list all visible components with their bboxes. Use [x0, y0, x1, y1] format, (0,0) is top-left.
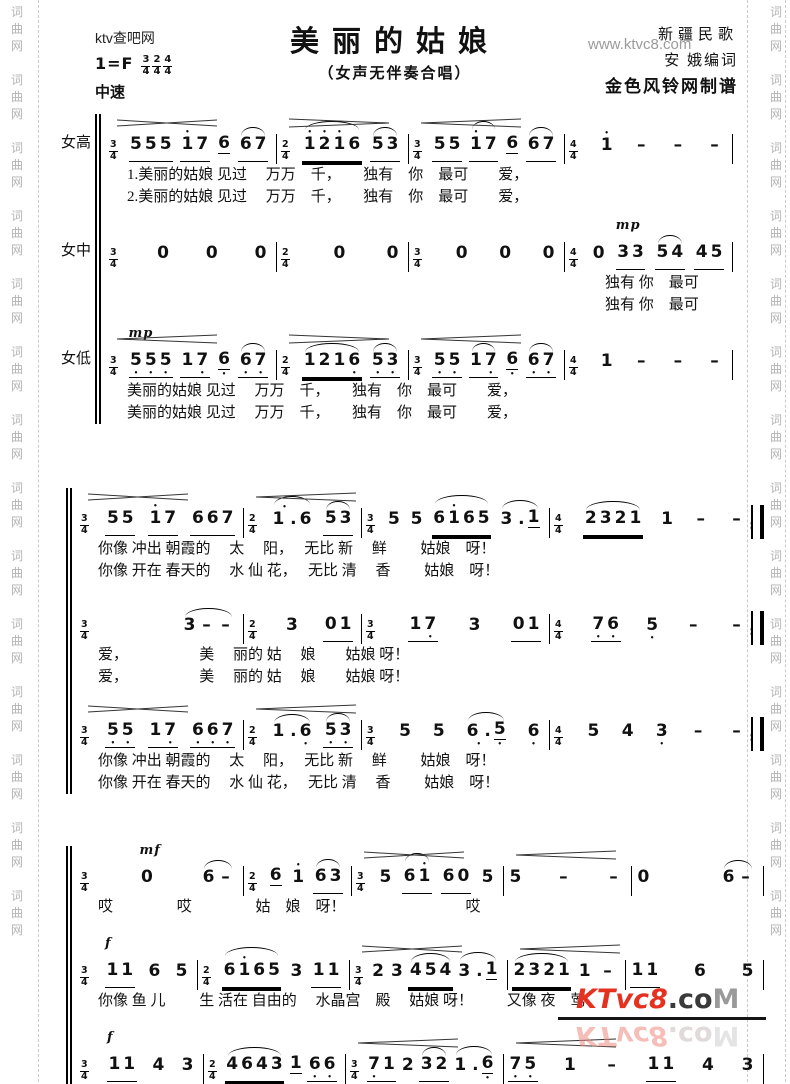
voice-label: 女低 [61, 347, 91, 368]
note: 6• [207, 510, 219, 534]
note-digit: 1 [470, 136, 482, 153]
note: •1• [238, 956, 250, 986]
time-signature: 34 [366, 726, 375, 748]
note: 5• [122, 722, 134, 746]
measure: 345•5•1•7•6•6•7• [409, 350, 565, 380]
beam-group: 6•7• [238, 136, 268, 162]
note: –• [199, 617, 215, 641]
note: 7• [222, 722, 234, 746]
note: 5• [510, 869, 522, 893]
note: 1• [313, 962, 325, 986]
beam-group: 3• [289, 963, 304, 988]
time-signature: 44 [163, 55, 172, 77]
note-group: –• [668, 137, 687, 162]
note-digit: – [706, 353, 722, 370]
note-group: 6•6•7• [190, 722, 235, 748]
lyric-line: 你像 开在 春天的 水 仙 花， 无比 清 香 姑娘 呀！ [76, 772, 770, 794]
beam-group: –• [727, 617, 746, 642]
note-digit: 5 [524, 1056, 536, 1073]
note-digit: 4 [622, 723, 634, 740]
octave-dot-below: • [532, 742, 536, 747]
beam-group: 1• [660, 511, 675, 536]
note: 6• [240, 136, 252, 160]
hairpin-icon [117, 118, 217, 128]
note-digit: – [606, 869, 622, 886]
note: 5• [399, 723, 411, 747]
note-group: 4• [620, 723, 635, 748]
time-signature: 24 [202, 966, 211, 988]
note: 3• [387, 136, 399, 160]
note-digit: 7 [510, 1056, 522, 1073]
note: 1• [149, 722, 161, 746]
note: 6• [348, 136, 360, 160]
beam-group: –• [632, 353, 651, 378]
note-group: 1• [599, 353, 614, 378]
note-digit: 3 [330, 868, 342, 885]
octave-dot-below: • [111, 741, 115, 746]
note: 5• [449, 136, 461, 160]
note: •1• [304, 130, 316, 160]
note: 5• [130, 136, 142, 160]
measure: 340•0•0• [409, 242, 565, 272]
note-group: –• [691, 511, 710, 536]
time-signature: 44 [554, 514, 563, 536]
note-digit: 7 [255, 136, 267, 153]
octave-dot-below: • [226, 741, 230, 746]
note-group: –• [705, 137, 724, 162]
note-digit: 5 [433, 723, 445, 740]
note-digit: 3 [184, 617, 196, 634]
note-digit: 6 [241, 1056, 253, 1073]
time-signature: 24 [281, 356, 290, 378]
note-group: –• [604, 869, 623, 894]
note-digit: 6 [192, 722, 204, 739]
note: 7• [255, 136, 267, 160]
note-group: –• [727, 511, 746, 536]
octave-dot-below: • [650, 636, 654, 641]
beam-group: 1•7• [180, 352, 210, 378]
note: 1• [601, 353, 613, 377]
note-group: •1•7• [180, 130, 210, 162]
note: 1• [410, 616, 422, 640]
note-digit: 2 [543, 962, 555, 979]
note: 6• [506, 135, 518, 161]
octave-dot-below: • [304, 742, 308, 747]
measure: 447•6•5•–•–• [550, 614, 764, 644]
beam-group: 6•6• [307, 1056, 337, 1082]
note-digit: 6 [253, 962, 265, 979]
watermark-logo-text: KTvc8.coM [576, 986, 739, 1013]
note-group: •1••2••1•6• [302, 130, 361, 162]
note-digit: 7 [196, 136, 208, 153]
note-group: 6•3• [313, 868, 343, 894]
note-digit: 5 [388, 511, 400, 528]
note: 6• [309, 1056, 321, 1080]
time-signature: 44 [569, 356, 578, 378]
note: –• [606, 869, 622, 893]
hairpin-icon [117, 334, 217, 344]
note-group: f1•1• [105, 962, 135, 988]
note-digit: 1 [383, 1056, 395, 1073]
note-digit: 1 [108, 1056, 120, 1073]
note-group: 5• [378, 869, 393, 894]
note: 6• [300, 511, 312, 535]
note-group: 7•1• [367, 1056, 397, 1082]
note-digit: 3 [290, 963, 302, 980]
hairpin-icon [88, 704, 188, 714]
note-digit: 1 [601, 353, 613, 370]
note-digit: 0 [499, 245, 511, 262]
note-digit: 3 [528, 962, 540, 979]
time-signature: 34 [109, 140, 118, 162]
beam-group: 0• [139, 869, 154, 894]
measure: 244•6•4•3•1•6•6• [204, 1054, 346, 1084]
beam-group: 5•5•5• [129, 352, 174, 378]
lyric-line: 哎 哎 姑 娘 呀！ 哎 [76, 896, 770, 918]
beam-group: –• [668, 137, 687, 162]
measure: 345•6••1•6•0•5• [352, 866, 504, 896]
note: 3• [182, 1057, 194, 1081]
note-digit: 1 [601, 137, 613, 154]
note-digit: 6 [300, 511, 312, 528]
note-digit: 3 [182, 1057, 194, 1074]
note-digit: 5 [130, 352, 142, 369]
note-digit: 1 [290, 1055, 302, 1074]
beam-group: 1•7• [469, 352, 499, 378]
octave-dot-below: • [438, 371, 442, 376]
note-digit: 1 [486, 961, 498, 980]
note-digit: 2 [372, 963, 384, 980]
note-digit: 0 [387, 245, 399, 262]
octave-dot-below: • [486, 1076, 490, 1081]
note-digit: 7 [424, 616, 436, 633]
note-group: 3• [285, 617, 300, 642]
hairpin-icon [520, 944, 620, 954]
beam-group: 5• [378, 869, 393, 894]
note: 1• [106, 962, 118, 986]
note-group: –• [632, 353, 651, 378]
note: 1• [528, 616, 540, 640]
beam-group: 6•–• [201, 869, 235, 894]
beam-group: 3• [390, 963, 405, 988]
beam-group: 4• [151, 1057, 166, 1082]
note: 7• [164, 510, 176, 534]
note-group: 2•3•2•1• [512, 962, 571, 988]
hairpin-icon [358, 1038, 458, 1048]
note-group: 6• [505, 135, 520, 162]
note-digit: 1 [528, 509, 540, 528]
note-digit: 6 [694, 963, 706, 980]
octave-dot-below: • [372, 1075, 376, 1080]
beam-group: 3• [740, 1057, 755, 1082]
octave-dot-below: • [200, 371, 204, 376]
measure: 34f1•1•4•3• [76, 1054, 204, 1084]
note-group: 5• [645, 617, 660, 642]
note-digit: 1 [662, 1056, 674, 1073]
beam-group: 5• [645, 617, 660, 642]
note-digit: 6 [192, 510, 204, 527]
note-digit: 6 [506, 351, 518, 370]
note: 1• [486, 961, 498, 987]
note: 4• [256, 1056, 268, 1080]
beam-group: –• [684, 617, 703, 642]
note: 4• [226, 1056, 238, 1080]
beam-group: 5•3• [323, 510, 353, 536]
note: 5• [524, 1056, 536, 1080]
time-signature: 24 [208, 1060, 217, 1082]
note-digit: – [693, 511, 709, 528]
time-signature: 24 [248, 620, 257, 642]
note-digit: 5 [379, 869, 391, 886]
note: 1• [470, 352, 482, 376]
voice-block: 345•5••1•7•6•6•7•24•1 .•6•5•3•345•5•6••1… [76, 488, 770, 582]
note-digit: 1 [340, 616, 352, 633]
beam-group: 6•–• [721, 869, 755, 894]
note-group: 5•5• [432, 136, 462, 162]
note: –• [555, 869, 571, 893]
beam-group: 3 .•1• [499, 509, 541, 536]
note: 7• [543, 352, 555, 376]
note: •1• [470, 130, 482, 160]
note-group: •1•7• [469, 130, 499, 162]
octave-dot-below: • [376, 371, 380, 376]
note-group: 5• [386, 511, 401, 536]
time-signature: 34 [109, 248, 118, 270]
note-group: 2•3•2•1• [583, 510, 642, 536]
note-digit: 1 [647, 1056, 659, 1073]
note-group: 5• [740, 963, 755, 988]
music-line: 345•5•1•7•6•6•7•241 .•6•5•3•345•5•6 .•5•… [76, 700, 770, 750]
note: 3• [271, 1056, 283, 1080]
note-digit: 5 [160, 352, 172, 369]
note-digit: 6 [218, 135, 230, 154]
measure: 240•0• [277, 242, 409, 272]
beam-group: 2•3•2•1• [583, 510, 642, 536]
song-subtitle: （女声无伴奏合唱） [318, 62, 471, 83]
octave-dot-below: • [168, 741, 172, 746]
lyric-line: 美丽的姑娘 见过 万万 千， 独有 你 最可 爱， [105, 380, 737, 402]
note: 1• [108, 1056, 120, 1080]
voice-block: 345•5•1•7•6•6•7•241 .•6•5•3•345•5•6 .•5•… [76, 700, 770, 794]
note-digit: 1 [333, 136, 345, 153]
note-digit: 5 [494, 721, 506, 740]
note: 6• [241, 1056, 253, 1080]
note: 6• [224, 962, 236, 986]
watermark-logo: KTvc8.coM KTvc8.coM [576, 986, 739, 1049]
voice-block: 34mf0•6•–•246••1•6•3•345•6••1•6•0•5•5•–•… [76, 846, 770, 918]
dynamic-marking: f [105, 936, 112, 951]
note: –• [218, 869, 234, 893]
note-group: 0•1• [323, 616, 353, 642]
note-digit: 3 . [458, 963, 482, 980]
note: 2• [372, 963, 384, 987]
note: –• [693, 511, 709, 535]
note-digit: 4 [152, 1057, 164, 1074]
time-signature: 44 [554, 726, 563, 748]
note: 5• [107, 510, 119, 534]
note-digit: 1 [328, 962, 340, 979]
note: –• [218, 617, 234, 641]
octave-dot-below: • [196, 741, 200, 746]
note-digit: 1 [123, 1056, 135, 1073]
note-digit: – [199, 617, 215, 634]
beam-group: 0• [385, 245, 400, 270]
note: –• [728, 723, 744, 747]
lyric-line: 你像 开在 春天的 水 仙 花， 无比 清 香 姑娘 呀！ [76, 560, 770, 582]
note-digit: 5 [434, 352, 446, 369]
measure: 441•–•–•–• [565, 350, 733, 380]
note-digit: 6 [528, 352, 540, 369]
note-group: 0• [454, 245, 469, 270]
beam-group: 5• [398, 723, 413, 748]
beam-group: –• [705, 137, 724, 162]
time-signature: 34 [413, 248, 422, 270]
beam-group: 1• [288, 1055, 303, 1082]
lyric-line: 2.美丽的姑娘 见过 万万 千， 独有 你 最可 爱， [105, 186, 737, 208]
beam-group: 5• [174, 963, 189, 988]
note-digit: 2 [585, 510, 597, 527]
note-group: 3• [289, 963, 304, 988]
note: 3• [528, 962, 540, 986]
note-group: 4•5• [694, 244, 724, 270]
octave-dot-below: • [611, 635, 615, 640]
time-signature: 34 [366, 514, 375, 536]
note: 7• [485, 136, 497, 160]
header-left-block: ktv查吧网 1=F 342444 中速 [95, 28, 174, 102]
octave-dot-below: • [211, 741, 215, 746]
note: 1• [632, 962, 644, 986]
note-group: 5•3• [370, 136, 400, 162]
note-digit: 0 [141, 869, 153, 886]
time-signature: 34 [80, 1060, 89, 1082]
note-group: 3 .•1• [499, 509, 541, 536]
beam-group: 2•3•2•1• [512, 962, 571, 988]
note-digit: – [685, 617, 701, 634]
tempo-marking: 中速 [95, 81, 174, 102]
note: 0• [206, 245, 218, 269]
note-digit: 5 [130, 136, 142, 153]
beam-group: 6• [505, 351, 520, 378]
hairpin-icon [256, 704, 356, 714]
time-signature: 34 [80, 620, 89, 642]
notation-credit: 金色风铃网制谱 [605, 74, 738, 100]
time-signature: 34 [80, 514, 89, 536]
note-group: 6•0• [441, 868, 471, 894]
note: 1• [646, 962, 658, 986]
beam-group: 4•5• [694, 244, 724, 270]
site-name: ktv查吧网 [95, 28, 174, 48]
beam-group: 5• [409, 511, 424, 536]
note-group: 0• [156, 245, 171, 270]
note: 7• [485, 352, 497, 376]
note: 5• [176, 963, 188, 987]
note-group: –• [632, 137, 651, 162]
measure: 246••1•6•5•3•1•1• [198, 960, 350, 990]
beam-group: 6•7• [526, 352, 556, 378]
note-digit: 1 [564, 1057, 576, 1074]
note-group: 5•5•5• [129, 136, 174, 162]
note-digit: 6 [270, 867, 282, 886]
music-line: 34f1•1•6•5•246••1•6•5•3•1•1•342•3•4•5•4•… [76, 940, 770, 990]
note: –• [728, 617, 744, 641]
note-digit: – [670, 353, 686, 370]
music-line: 345•5••1•7•6•6•7•24•1 .•6•5•3•345•5•6••1… [76, 488, 770, 538]
note-digit: 7 [543, 136, 555, 153]
beam-group: 0• [541, 245, 556, 270]
note: 2• [436, 1056, 448, 1080]
note-group: 0•1• [511, 616, 541, 642]
beam-group: 1•2•1•6• [302, 352, 361, 378]
note-group: 4•5•4• [408, 962, 453, 988]
time-signature: 34 [350, 1060, 359, 1082]
note-digit: 1 [181, 352, 193, 369]
note: 0• [457, 868, 469, 892]
note-group: 5• [586, 723, 601, 748]
note: 0• [325, 616, 337, 640]
measure: 34f1•1•6•5• [76, 960, 198, 990]
note-digit: 7 [255, 352, 267, 369]
note-group: 5• [398, 723, 413, 748]
note-digit: 1 [528, 616, 540, 633]
note-digit: 5 [742, 963, 754, 980]
note-digit: 5 [711, 244, 723, 261]
note-digit: 5 [107, 722, 119, 739]
note: 2• [514, 962, 526, 986]
note-digit: 5 [646, 617, 658, 634]
note-digit: 3 [656, 723, 668, 740]
dynamic-marking: mf [139, 843, 160, 858]
beam-group: –• [689, 723, 708, 748]
voice-label: 女高 [61, 131, 91, 152]
note-group: 2• [371, 963, 386, 988]
note-digit: 3 [340, 510, 352, 527]
beam-group: 3•3• [616, 244, 646, 270]
dynamic-marking: mp [616, 218, 641, 233]
note: 3 .• [500, 511, 524, 535]
note-group: 1•2•1•6• [302, 352, 361, 378]
note: 5• [434, 352, 446, 376]
note: 3 .• [458, 963, 482, 987]
measure: 347•1•2•3•2•1 .•6• [346, 1054, 504, 1084]
hairpin-icon [289, 334, 389, 344]
beam-group: 3• [467, 617, 482, 642]
note: 0• [456, 245, 468, 269]
note: 4• [702, 1057, 714, 1081]
beam-group: 1• [599, 353, 614, 378]
beam-group: •1• [291, 863, 306, 894]
measure: 241•2•1•6•5•3• [277, 350, 409, 380]
key-signature: 1=F [95, 54, 133, 73]
note: 5• [388, 511, 400, 535]
note-group: –• [727, 617, 746, 642]
note: 6• [482, 1055, 494, 1081]
note-group: 6• [147, 963, 162, 988]
note-digit: 2 [514, 962, 526, 979]
note-group: –• [684, 617, 703, 642]
octave-dot-below: • [244, 371, 248, 376]
note-group: 0• [332, 245, 347, 270]
note-group: 1• [660, 511, 675, 536]
note-digit: 6 [404, 868, 416, 885]
beam-group: 6•0• [441, 868, 471, 894]
note-digit: 1 [304, 136, 316, 153]
measure: 0•6•–• [632, 866, 764, 896]
note-digit: 5 [399, 723, 411, 740]
note-group: 6•–• [201, 869, 235, 894]
note-digit: 5 [325, 510, 337, 527]
note: 5• [107, 722, 119, 746]
measure: 24•1••2••1•6•5•3• [277, 134, 409, 164]
